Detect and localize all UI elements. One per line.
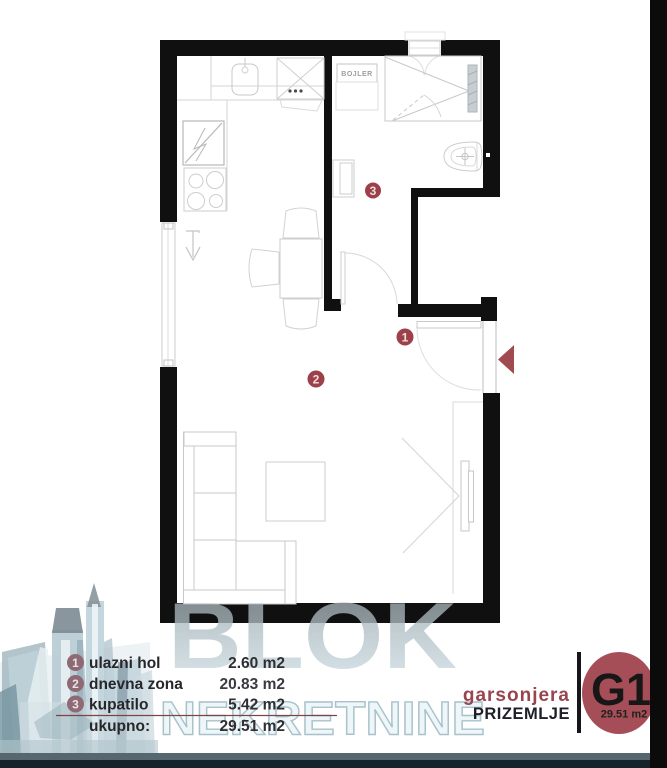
svg-text:dnevna zona: dnevna zona: [89, 676, 183, 693]
svg-text:1: 1: [402, 331, 409, 345]
svg-text:29.51 m2: 29.51 m2: [220, 718, 286, 735]
svg-text:NEKRETNINE: NEKRETNINE: [160, 692, 485, 745]
svg-text:ulazni hol: ulazni hol: [89, 655, 160, 672]
svg-text:BLOK: BLOK: [168, 583, 457, 688]
svg-text:29.51 m2: 29.51 m2: [601, 709, 647, 721]
svg-text:5.42 m2: 5.42 m2: [228, 697, 285, 714]
svg-text:BOJLER: BOJLER: [341, 71, 372, 78]
svg-text:20.83 m2: 20.83 m2: [220, 676, 286, 693]
svg-text:2.60 m2: 2.60 m2: [228, 655, 285, 672]
svg-text:kupatilo: kupatilo: [89, 697, 148, 714]
svg-text:garsonjera: garsonjera: [463, 685, 570, 706]
svg-text:PRIZEMLJE: PRIZEMLJE: [473, 705, 570, 723]
svg-text:G1: G1: [591, 664, 651, 715]
svg-text:ukupno:: ukupno:: [89, 718, 150, 735]
svg-text:3: 3: [370, 184, 377, 198]
svg-text:2: 2: [313, 373, 320, 387]
svg-text:1: 1: [72, 656, 79, 670]
svg-text:3: 3: [72, 698, 79, 712]
svg-text:2: 2: [72, 677, 79, 691]
